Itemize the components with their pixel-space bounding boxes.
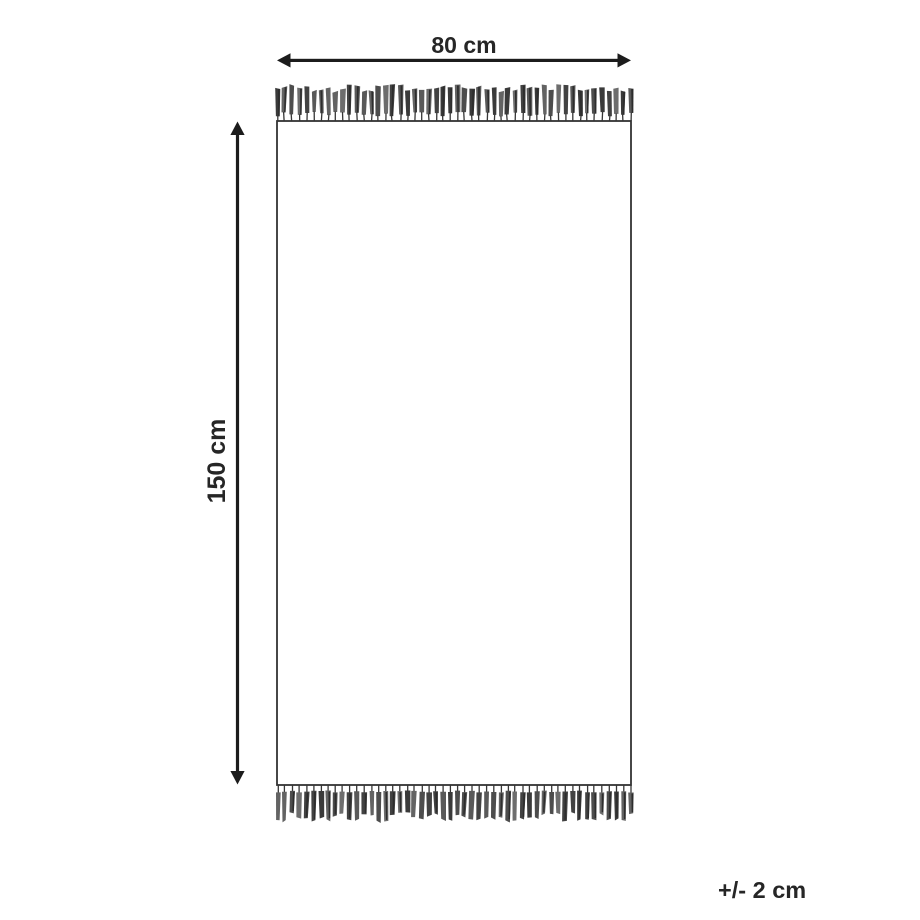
svg-text:80 cm: 80 cm bbox=[431, 32, 496, 58]
svg-text:+/- 2 cm: +/- 2 cm bbox=[718, 877, 806, 903]
svg-text:150 cm: 150 cm bbox=[203, 419, 231, 504]
